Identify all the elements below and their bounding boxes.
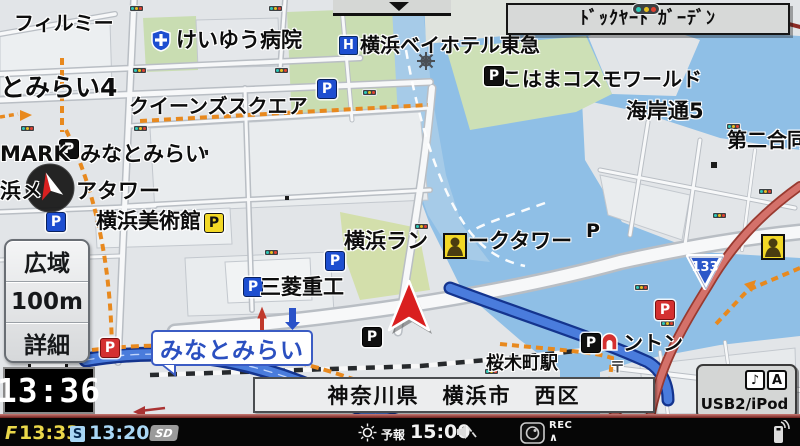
forecast-label: 予報 xyxy=(381,429,405,441)
clock: 13:36 xyxy=(3,367,95,414)
map-label-queens-square: クイーンズスクエア xyxy=(129,96,308,116)
parking-icon-black: P xyxy=(581,333,601,353)
traffic-light-icon xyxy=(758,188,773,195)
s-badge-icon: S xyxy=(70,426,85,442)
navigation-screen: 133 P P P P P P P P P P P P H xyxy=(0,0,800,446)
map-label-hospital: けいゆう病院 xyxy=(176,30,302,51)
scale-value[interactable]: 100m xyxy=(6,282,88,322)
parking-icon: P xyxy=(317,79,337,99)
map-label-film: フィルミー xyxy=(14,13,114,33)
status-bar: F 13:33 S 13:20 SD 予報 15:00 REC ∧ xyxy=(0,418,800,446)
music-note-icon: ♪ xyxy=(745,370,765,390)
parking-icon: P xyxy=(46,212,66,232)
traffic-light-icon xyxy=(268,5,283,12)
poi-dot xyxy=(711,162,717,168)
map-label-hotel: 横浜ベイホテル東急 xyxy=(360,35,540,55)
av-source-icon: A xyxy=(767,370,787,390)
map-label-landmark-tower-r: ークタワー xyxy=(468,231,572,252)
traffic-light-icon xyxy=(132,67,147,74)
traffic-light-icon xyxy=(712,212,727,219)
map-label-art-museum: 横浜美術館 xyxy=(96,211,201,232)
ipod-signal-icon xyxy=(768,420,796,444)
traffic-light-icon xyxy=(660,320,675,327)
parking-icon: P xyxy=(325,251,345,271)
zoom-out-button[interactable]: 広域 xyxy=(6,241,88,281)
via-arrival-time: 13:20 xyxy=(89,424,149,443)
traffic-light-icon xyxy=(634,284,649,291)
map-label-media-tower-l: 浜メ xyxy=(0,181,42,202)
balloon-pointer-icon xyxy=(389,2,409,11)
station-balloon: みなとみらい xyxy=(151,330,313,366)
drive-recorder-icon xyxy=(520,422,545,444)
museum-icon xyxy=(443,233,467,259)
map-label-markis: MARK xyxy=(0,144,70,165)
goal-flag-icon: F xyxy=(5,425,17,443)
traffic-light-icon xyxy=(133,125,148,132)
map-label-mitsubishi: 三菱重工 xyxy=(260,277,344,298)
sun-icon xyxy=(358,423,377,442)
map-label-media-tower-r: アタワー xyxy=(76,181,160,202)
sd-card-icon: SD xyxy=(149,425,179,441)
zoom-in-button[interactable]: 詳細 xyxy=(6,323,88,363)
parking-letter: P xyxy=(584,222,602,240)
parking-icon-black: P xyxy=(362,327,382,347)
traffic-signal-icon xyxy=(632,3,660,15)
traffic-light-icon xyxy=(274,67,289,74)
map-label-cosmoworld: こはまコスモワールド xyxy=(502,69,702,89)
mute-icon xyxy=(456,423,478,441)
parking-icon-red: P xyxy=(655,300,675,320)
offscreen-balloon-tail xyxy=(333,0,451,16)
traffic-light-icon xyxy=(20,125,35,132)
traffic-light-icon xyxy=(129,5,144,12)
poi-dot xyxy=(285,196,289,200)
rec-label: REC xyxy=(549,421,572,431)
hotel-icon: H xyxy=(339,36,358,55)
museum-icon xyxy=(761,234,785,260)
parking-icon-black: P xyxy=(484,66,504,86)
map-label-washington: ントン xyxy=(623,333,683,353)
map-label-markis-minatomirai: みなとみらい xyxy=(80,144,206,165)
traffic-light-icon xyxy=(264,249,279,256)
rec-caret: ∧ xyxy=(549,432,558,443)
usb-ipod-button[interactable]: ♪ A USB2/iPod xyxy=(696,364,797,419)
post-office-icon: 〒 xyxy=(610,360,625,375)
parking-icon-yellow: P xyxy=(204,213,224,233)
traffic-light-icon xyxy=(362,89,377,96)
map-label-minatomirai4: とみらい4 xyxy=(0,75,117,100)
parking-icon-red: P xyxy=(100,338,120,358)
map-label-landmark-tower-l: 横浜ラン xyxy=(344,231,428,252)
map-label-sakuragicho: 桜木町駅 xyxy=(486,355,558,373)
address-bar: 神奈川県 横浜市 西区 xyxy=(253,377,655,413)
scale-panel[interactable]: 広域 100m 詳細 xyxy=(4,239,90,363)
map-label-kaigandori: 海岸通5 xyxy=(626,101,704,122)
hospital-icon xyxy=(151,29,171,52)
map-label-dainigodo: 第二合同 xyxy=(727,130,800,150)
usb-ipod-label: USB2/iPod xyxy=(698,395,791,413)
svg-text:133: 133 xyxy=(691,260,718,275)
station-balloon-tail xyxy=(160,364,176,377)
red-landmark-icon xyxy=(600,332,619,351)
